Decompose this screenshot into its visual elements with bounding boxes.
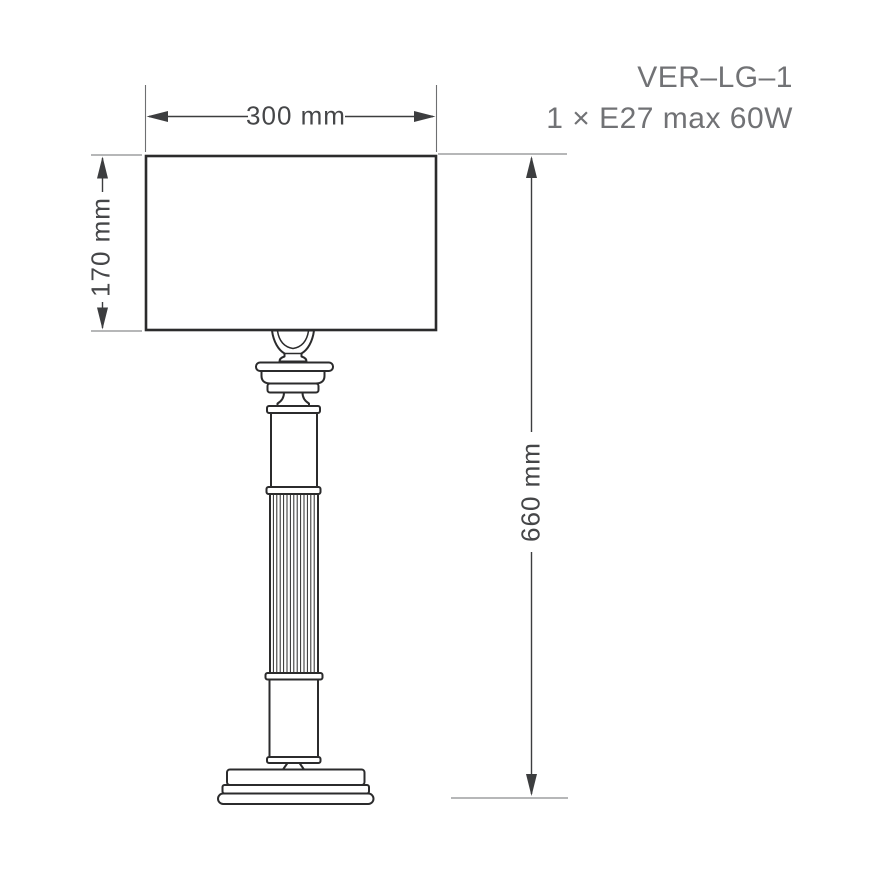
column-top-cap (267, 406, 320, 413)
capital-step (268, 384, 319, 393)
capital-top-disc (256, 363, 333, 372)
dimension-label-shade-width: 300 mm (246, 101, 346, 132)
lamp-body (146, 156, 436, 804)
lamp-column (266, 406, 323, 763)
arrow-left-icon (147, 111, 169, 122)
lamp-base (218, 763, 374, 804)
base-middle-slab (223, 785, 370, 794)
lamp-shade (146, 156, 436, 330)
column-upper-ring (267, 487, 321, 494)
dimension-total-height (438, 154, 568, 798)
arrow-down-icon (526, 774, 537, 796)
product-code: VER–LG–1 (546, 57, 793, 98)
product-info: VER–LG–1 1 × E27 max 60W (546, 57, 793, 139)
base-upper-slab (227, 770, 365, 786)
lamp-socket-cup (272, 331, 314, 362)
dimension-label-shade-height: 170 mm (86, 197, 117, 297)
arrow-right-icon (414, 111, 436, 122)
arrow-down-icon (97, 308, 108, 330)
arrow-up-icon (526, 156, 537, 178)
column-lower-cylinder (270, 680, 319, 758)
lamp-capital (256, 363, 333, 407)
capital-bowl (262, 371, 325, 384)
base-bottom-torus (218, 794, 374, 805)
product-spec: 1 × E27 max 60W (546, 98, 793, 139)
dimension-label-total-height: 660 mm (516, 442, 547, 542)
capital-goblet-neck (278, 393, 310, 407)
arrow-up-icon (97, 157, 108, 179)
column-upper-cylinder (271, 413, 317, 487)
lamp-technical-drawing-page: 300 mm 170 mm 660 mm VER–LG–1 1 × E27 ma… (0, 0, 883, 883)
